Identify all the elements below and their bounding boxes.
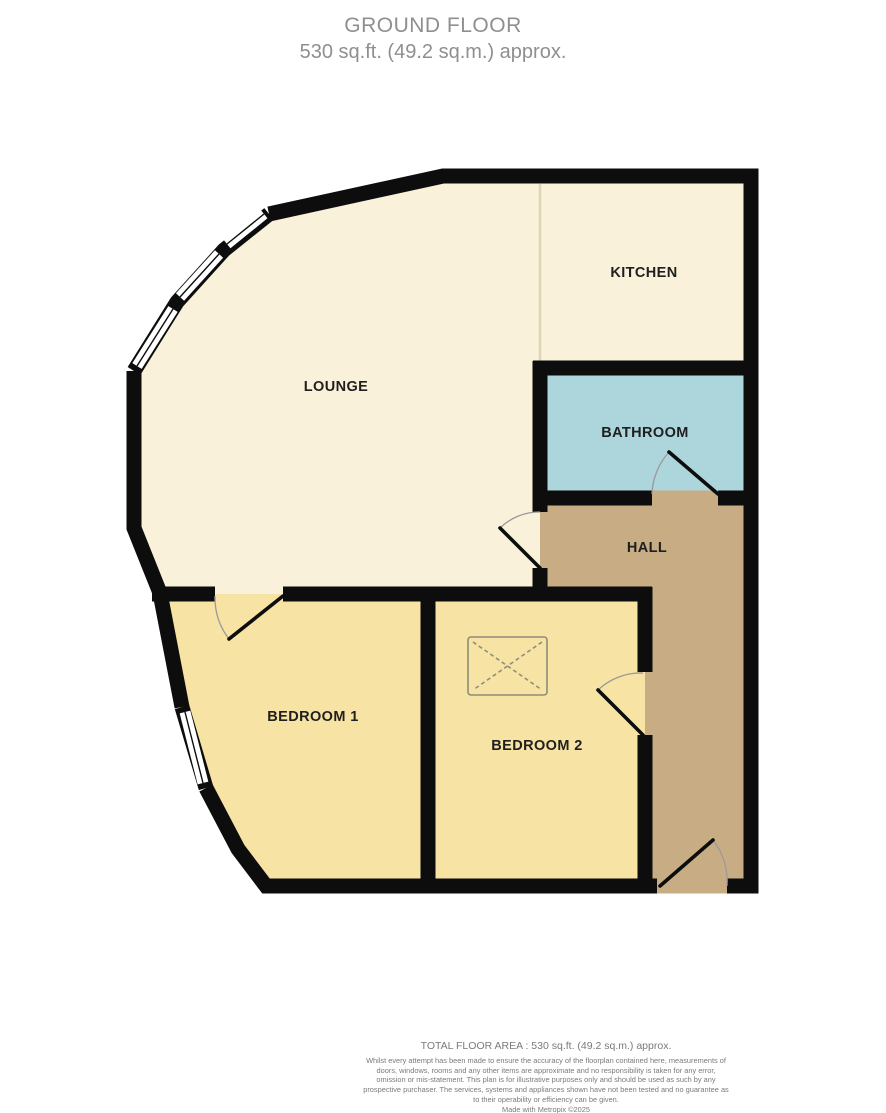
lounge-label: LOUNGE	[304, 379, 368, 395]
bedroom2-label: BEDROOM 2	[491, 738, 582, 754]
metropix-credit: Made with Metropix ©2025	[362, 1105, 730, 1113]
kitchen-label: KITCHEN	[610, 265, 677, 281]
bedroom1-floor	[160, 594, 428, 886]
floorplan-drawing: KITCHEN LOUNGE BATHROOM HALL BEDROOM 1 B…	[0, 0, 886, 1113]
floorplan-page: GROUND FLOOR 530 sq.ft. (49.2 sq.m.) app…	[0, 0, 886, 1113]
bedroom1-label: BEDROOM 1	[267, 709, 358, 725]
hall-label: HALL	[627, 540, 667, 556]
plan-footer: TOTAL FLOOR AREA : 530 sq.ft. (49.2 sq.m…	[362, 1040, 730, 1113]
bathroom-door-threshold	[652, 491, 718, 506]
bathroom-label: BATHROOM	[601, 425, 689, 441]
total-floor-area: TOTAL FLOOR AREA : 530 sq.ft. (49.2 sq.m…	[362, 1040, 730, 1052]
disclaimer-text: Whilst every attempt has been made to en…	[362, 1056, 730, 1104]
